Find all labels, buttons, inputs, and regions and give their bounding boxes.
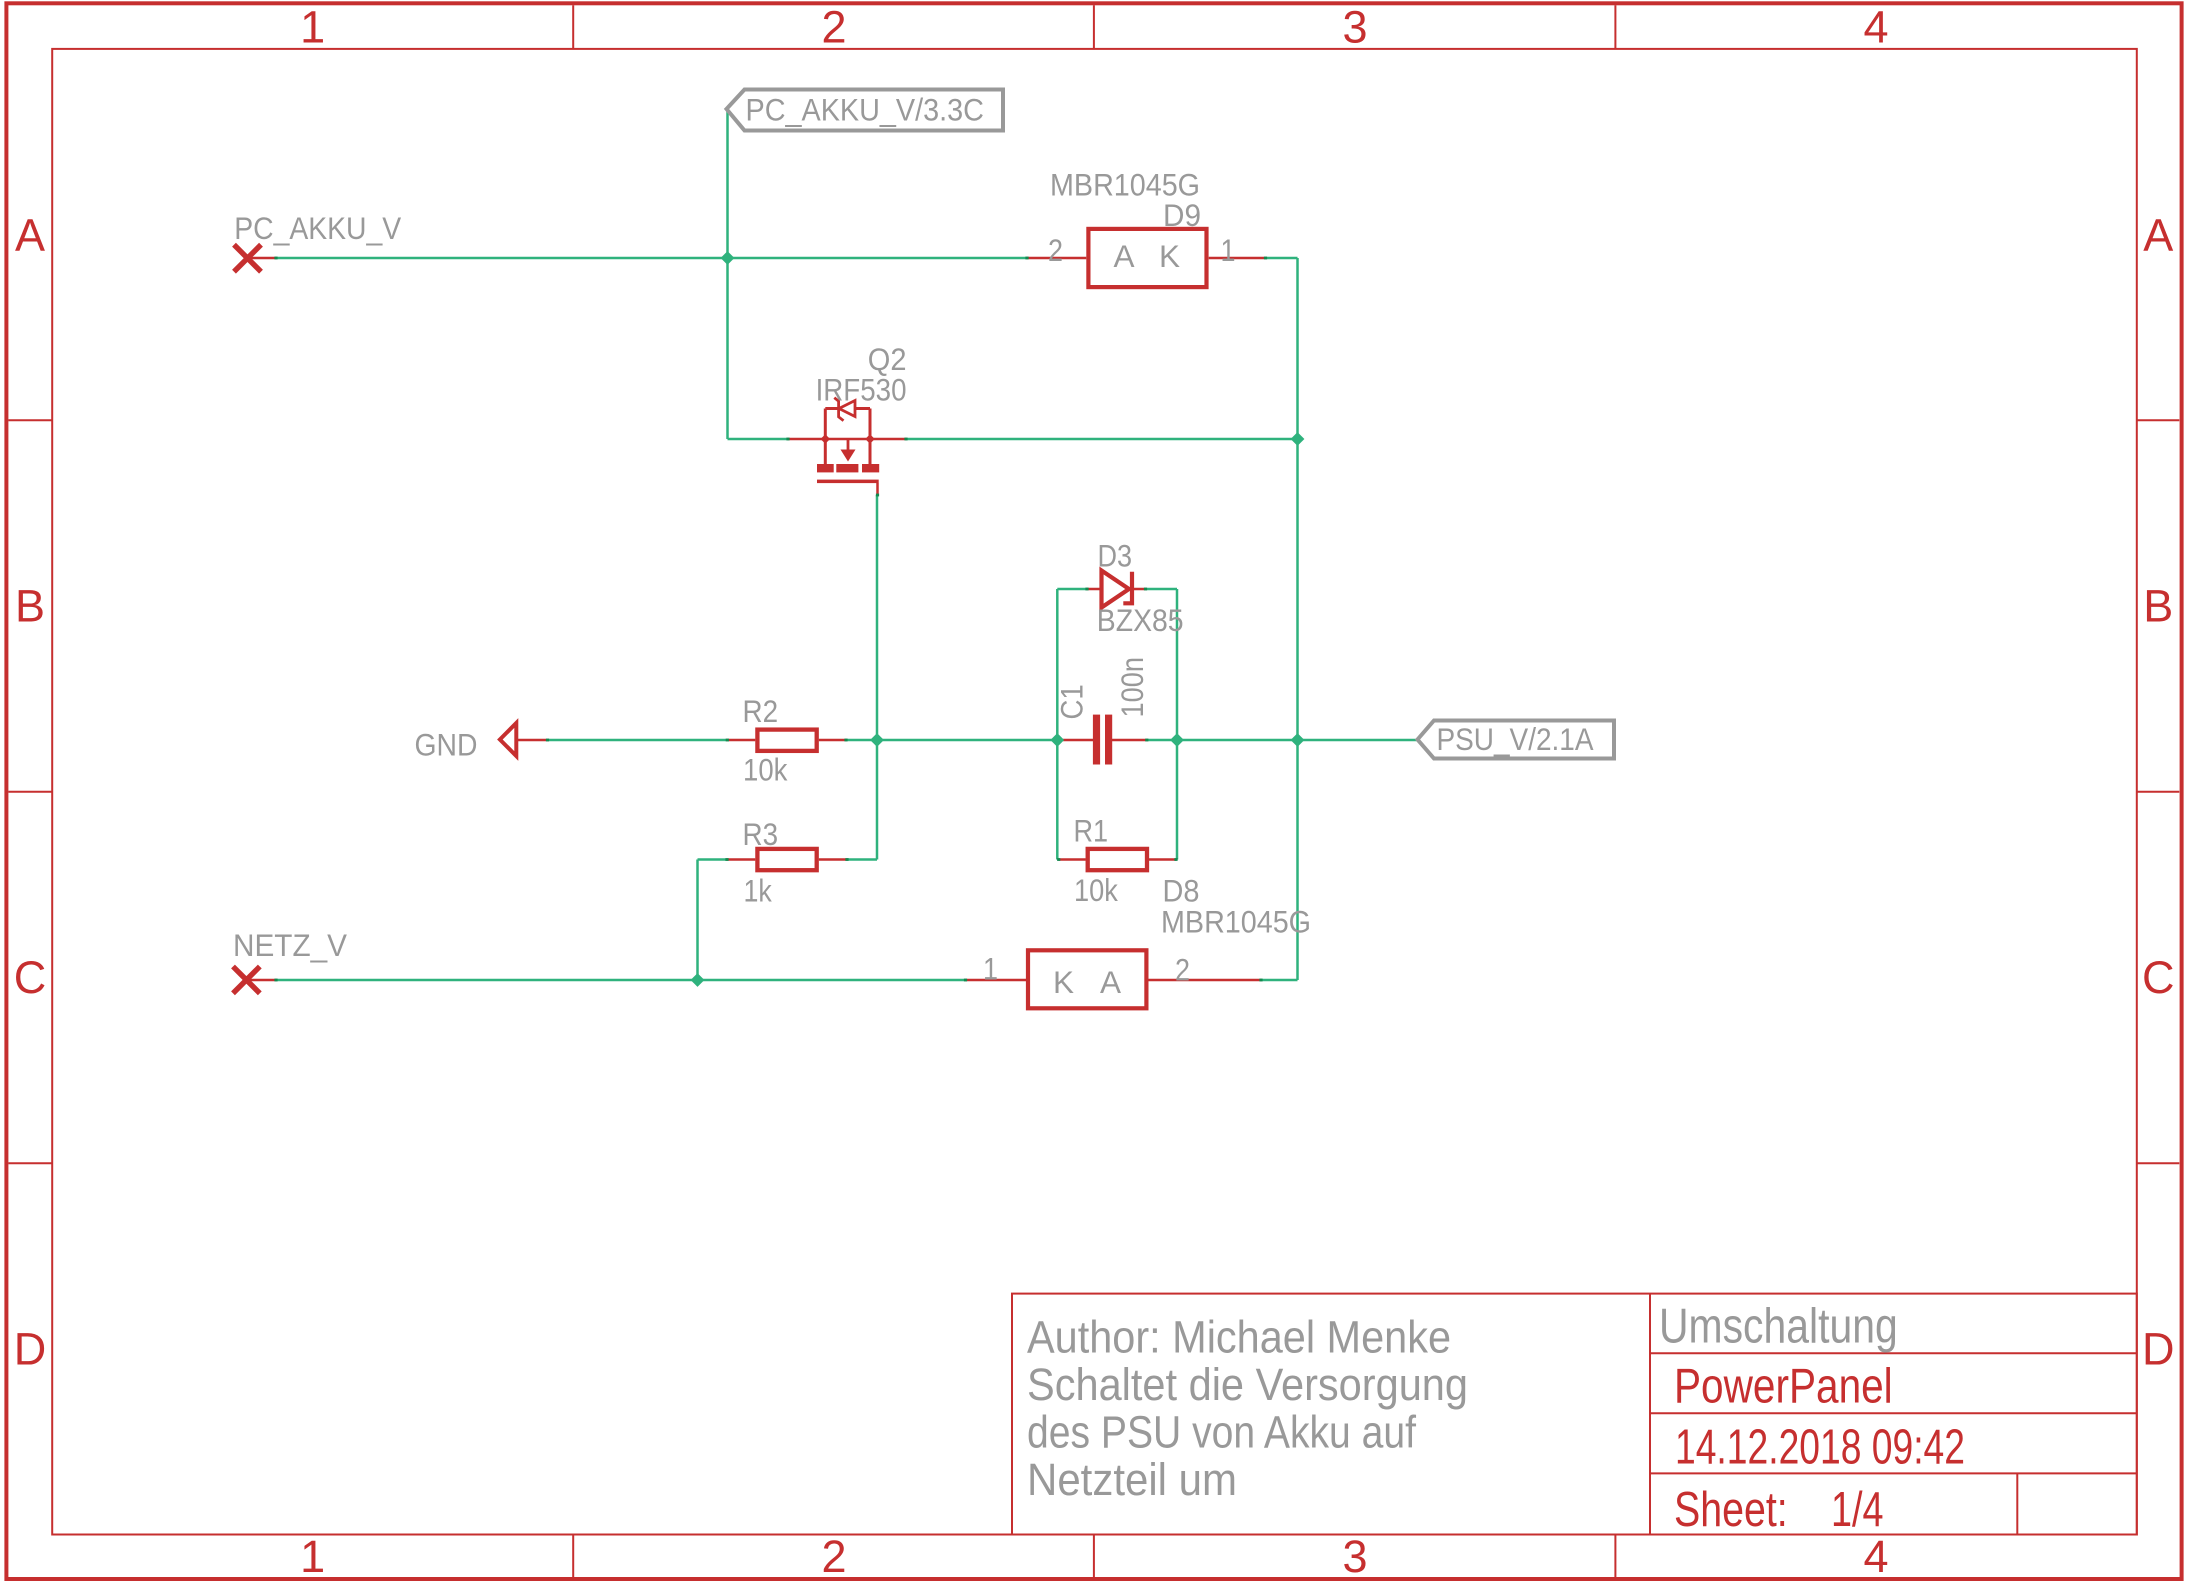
svg-text:des PSU von Akku auf: des PSU von Akku auf [1027, 1407, 1416, 1458]
svg-text:K: K [1053, 964, 1074, 1000]
svg-text:10k: 10k [743, 752, 788, 788]
svg-text:C1: C1 [1054, 684, 1090, 719]
svg-text:K: K [1159, 238, 1180, 274]
svg-text:IRF530: IRF530 [816, 372, 907, 408]
svg-text:GND: GND [415, 727, 478, 763]
svg-text:10k: 10k [1074, 872, 1118, 908]
svg-text:100n: 100n [1114, 657, 1150, 718]
svg-text:A: A [2143, 210, 2173, 261]
svg-text:Author: Michael Menke: Author: Michael Menke [1027, 1312, 1451, 1363]
svg-text:2: 2 [821, 1531, 846, 1582]
svg-text:14.12.2018 09:42: 14.12.2018 09:42 [1675, 1421, 1965, 1475]
svg-text:1/4: 1/4 [1831, 1483, 1884, 1537]
svg-text:2: 2 [1175, 952, 1190, 988]
svg-text:4: 4 [1863, 1531, 1888, 1582]
svg-text:3: 3 [1342, 1531, 1367, 1582]
svg-text:B: B [2143, 581, 2173, 632]
svg-text:Sheet:: Sheet: [1674, 1483, 1788, 1537]
svg-text:1: 1 [300, 1531, 325, 1582]
svg-text:B: B [15, 581, 45, 632]
svg-text:Umschaltung: Umschaltung [1659, 1300, 1898, 1354]
svg-text:D9: D9 [1163, 197, 1201, 233]
svg-text:A: A [1100, 964, 1121, 1000]
svg-text:R1: R1 [1074, 813, 1109, 849]
svg-text:R3: R3 [743, 816, 779, 852]
svg-text:Schaltet die Versorgung: Schaltet die Versorgung [1027, 1359, 1468, 1410]
svg-text:1k: 1k [744, 873, 773, 909]
svg-text:Netzteil um: Netzteil um [1027, 1454, 1237, 1505]
svg-text:R2: R2 [743, 693, 779, 729]
svg-text:1: 1 [1221, 232, 1236, 268]
svg-text:2: 2 [821, 2, 846, 53]
svg-text:4: 4 [1863, 2, 1888, 53]
svg-text:PC_AKKU_V: PC_AKKU_V [234, 210, 401, 246]
svg-text:2: 2 [1048, 232, 1063, 268]
svg-text:BZX85: BZX85 [1097, 602, 1184, 638]
svg-text:C: C [2142, 952, 2175, 1003]
svg-text:3: 3 [1342, 2, 1367, 53]
svg-text:PowerPanel: PowerPanel [1674, 1360, 1893, 1414]
svg-text:NETZ_V: NETZ_V [233, 927, 347, 963]
svg-text:A: A [1113, 238, 1134, 274]
svg-text:D3: D3 [1098, 538, 1133, 574]
svg-text:1: 1 [300, 2, 325, 53]
svg-text:A: A [15, 210, 45, 261]
svg-text:D: D [14, 1324, 47, 1375]
svg-text:1: 1 [983, 951, 998, 987]
svg-text:MBR1045G: MBR1045G [1161, 904, 1311, 940]
svg-text:PSU_V/2.1A: PSU_V/2.1A [1437, 721, 1594, 757]
svg-text:PC_AKKU_V/3.3C: PC_AKKU_V/3.3C [746, 92, 984, 128]
svg-text:D: D [2142, 1324, 2175, 1375]
svg-text:C: C [14, 952, 47, 1003]
